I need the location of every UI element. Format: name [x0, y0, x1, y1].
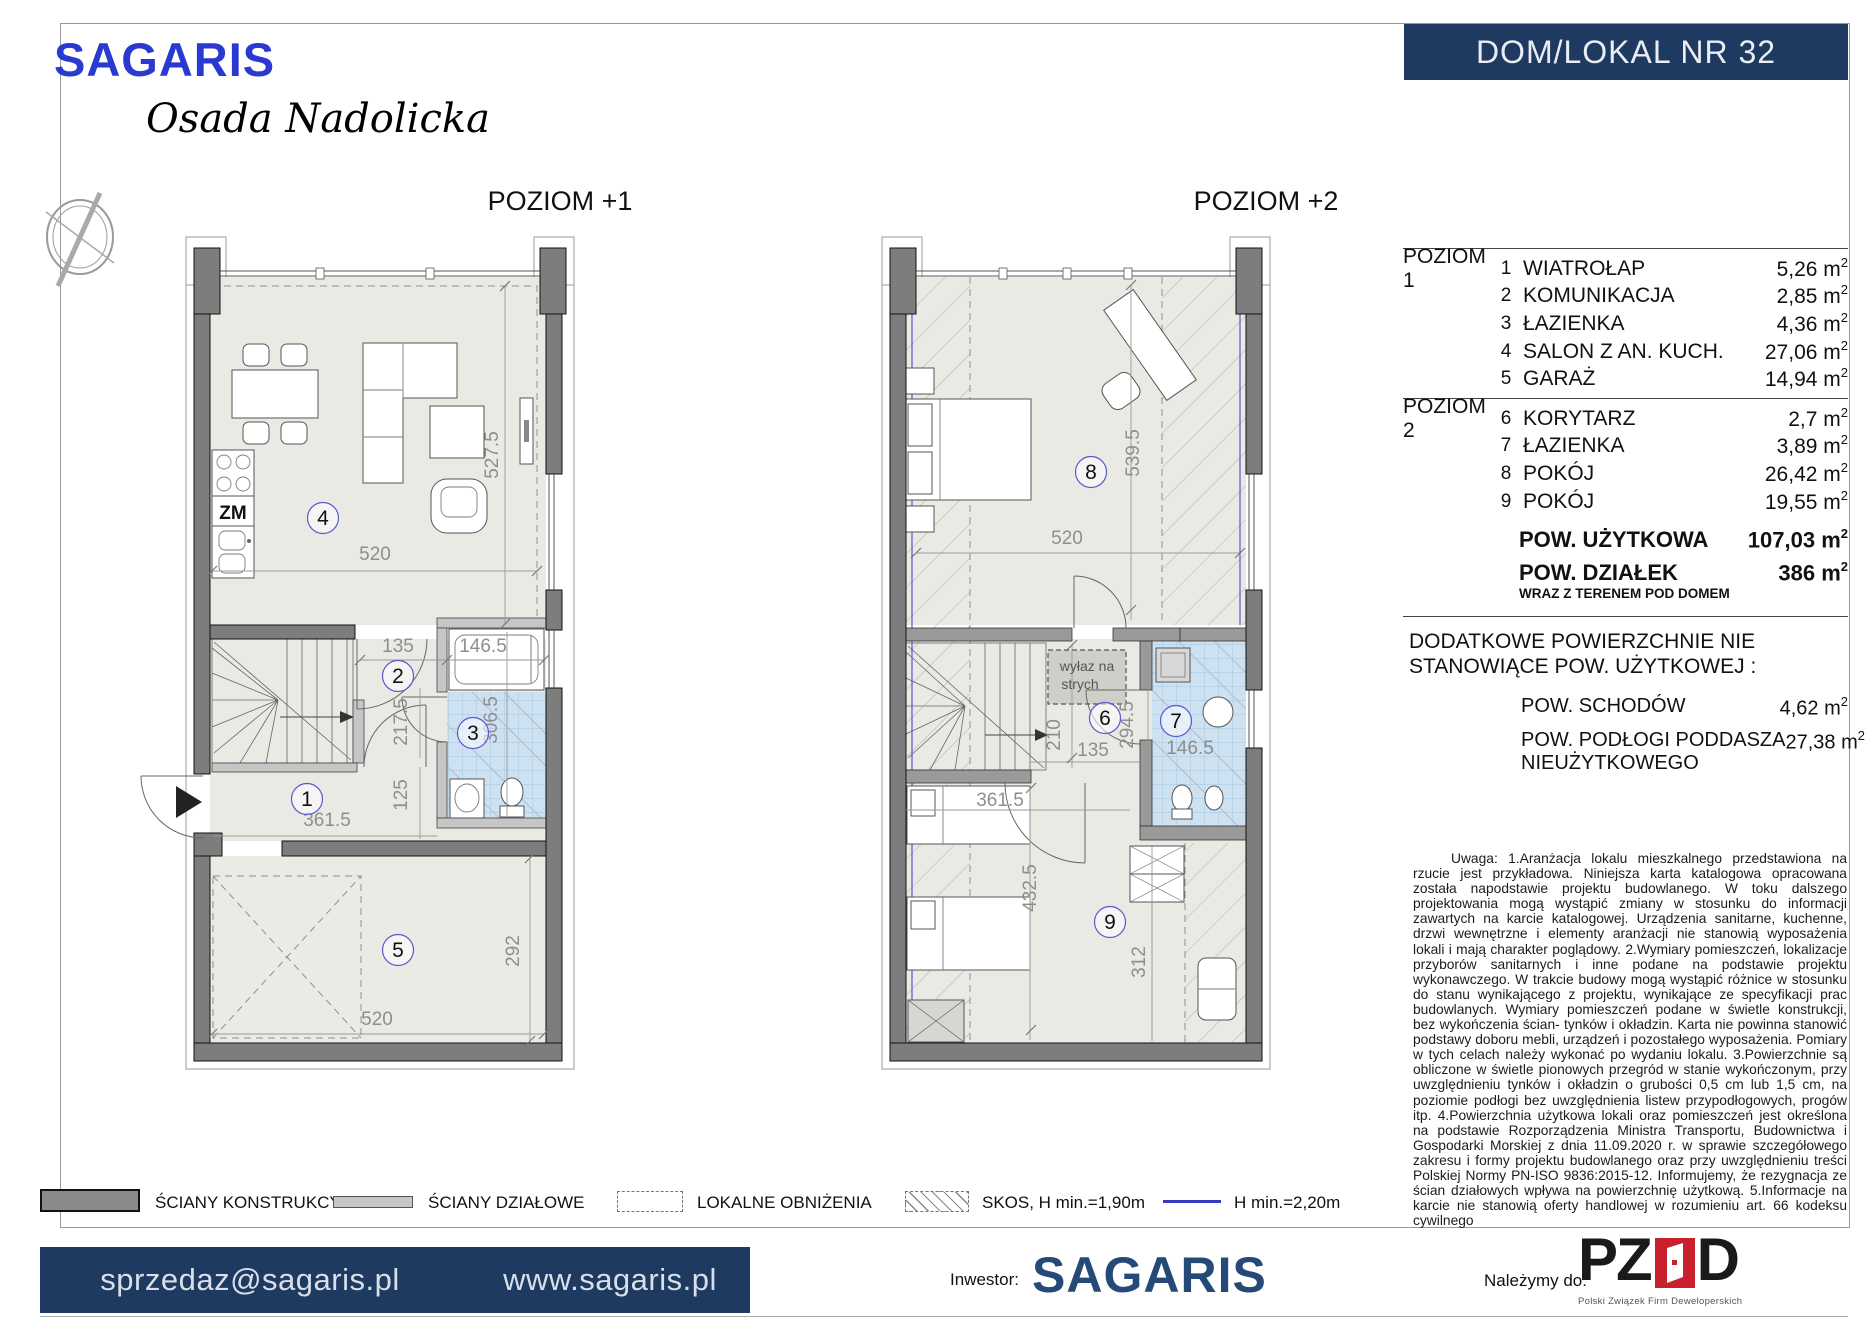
svg-text:2: 2 — [392, 665, 404, 688]
area-table: POZIOM 11WIATROŁAP5,26 m22KOMUNIKACJA2,8… — [1403, 248, 1848, 775]
pzfd-logo: PZ D Polski Związek Firm Deweloperskich — [1578, 1234, 1768, 1307]
total-usable-value: 107,03 m2 — [1748, 527, 1848, 553]
svg-text:135: 135 — [1077, 740, 1109, 761]
svg-text:292: 292 — [503, 935, 524, 967]
svg-text:210: 210 — [1044, 719, 1065, 751]
area-row: 3ŁAZIENKA4,36 m2 — [1403, 310, 1848, 338]
footer-bar: sprzedaz@sagaris.pl www.sagaris.pl — [40, 1247, 750, 1313]
legend-partition-wall-label: ŚCIANY DZIAŁOWE — [428, 1193, 585, 1213]
investor-logo: SAGARIS — [1032, 1246, 1267, 1304]
svg-text:1: 1 — [301, 788, 313, 811]
area-row: 9POKÓJ19,55 m2 — [1403, 488, 1848, 516]
table-rule — [1403, 616, 1848, 617]
area-row: 4SALON Z AN. KUCH.27,06 m2 — [1403, 338, 1848, 366]
pzfd-door-icon — [1655, 1238, 1695, 1288]
svg-text:527.5: 527.5 — [482, 431, 503, 479]
legend-local-lowering-swatch — [617, 1191, 683, 1212]
svg-text:strych: strych — [1061, 676, 1098, 692]
legend-slope-swatch — [905, 1191, 969, 1212]
sales-email: sprzedaz@sagaris.pl — [100, 1262, 400, 1298]
plan2: 520539.5210135294.5146.5361.5432.5312wył… — [882, 237, 1270, 1069]
svg-text:361.5: 361.5 — [976, 790, 1024, 811]
total-usable-label: POW. UŻYTKOWA — [1403, 527, 1708, 553]
svg-text:146.5: 146.5 — [1166, 738, 1214, 759]
legend-structural-wall-swatch — [40, 1189, 140, 1212]
website-link: www.sagaris.pl — [460, 1262, 760, 1298]
svg-text:312: 312 — [1129, 946, 1150, 978]
area-row: POZIOM 11WIATROŁAP5,26 m2 — [1403, 255, 1848, 283]
total-plot-value: 386 m2 — [1778, 560, 1848, 586]
svg-text:294.5: 294.5 — [1117, 701, 1138, 749]
total-plot-label: POW. DZIAŁEK WRAZ Z TERENEM POD DOMEM — [1403, 560, 1730, 601]
svg-text:6: 6 — [1099, 707, 1111, 730]
legend-local-lowering-label: LOKALNE OBNIŻENIA — [697, 1193, 872, 1213]
svg-text:520: 520 — [359, 544, 391, 565]
area-row: 5GARAŻ14,94 m2 — [1403, 365, 1848, 393]
compass-icon — [46, 193, 114, 286]
total-plot-row: POW. DZIAŁEK WRAZ Z TERENEM POD DOMEM 38… — [1403, 560, 1848, 616]
svg-text:8: 8 — [1085, 461, 1097, 484]
stairs-area-row: POW. SCHODÓW 4,62 m2 — [1403, 695, 1848, 721]
disclaimer-text: Uwaga: 1.Aranżacja lokalu mieszkalnego p… — [1413, 851, 1847, 1228]
legend-slope-label: SKOS, H min.=1,90m — [982, 1193, 1145, 1213]
investor-label: Inwestor: — [950, 1270, 1019, 1290]
additional-areas-heading: DODATKOWE POWIERZCHNIE NIE STANOWIĄCE PO… — [1403, 629, 1848, 679]
plan1: 520527.5135146.5217.5306.5125361.5292520… — [141, 237, 574, 1069]
attic-area-row: POW. PODŁOGI PODDASZA NIEUŻYTKOWEGO 27,3… — [1403, 729, 1848, 775]
area-row: POZIOM 26KORYTARZ2,7 m2 — [1403, 405, 1848, 433]
svg-text:520: 520 — [1051, 528, 1083, 549]
svg-text:432.5: 432.5 — [1020, 864, 1041, 912]
svg-text:4: 4 — [317, 507, 329, 530]
total-usable-row: POW. UŻYTKOWA 107,03 m2 — [1403, 520, 1848, 560]
legend-hmin-line-swatch — [1163, 1200, 1221, 1203]
svg-text:ZM: ZM — [219, 503, 246, 524]
svg-text:5: 5 — [392, 939, 404, 962]
area-row: 8POKÓJ26,42 m2 — [1403, 460, 1848, 488]
svg-text:9: 9 — [1104, 911, 1116, 934]
total-plot-subnote: WRAZ Z TERENEM POD DOMEM — [1519, 586, 1730, 601]
svg-text:125: 125 — [391, 779, 412, 811]
svg-text:3: 3 — [467, 722, 479, 745]
membership-label: Należymy do: — [1484, 1271, 1587, 1291]
svg-text:135: 135 — [382, 636, 414, 657]
attic-area-value: 27,38 m2 — [1786, 729, 1866, 755]
svg-text:520: 520 — [361, 1009, 393, 1030]
svg-text:wyłaz na: wyłaz na — [1059, 658, 1115, 674]
svg-text:146.5: 146.5 — [459, 636, 507, 657]
stairs-area-value: 4,62 m2 — [1780, 695, 1848, 721]
legend-partition-wall-swatch — [333, 1196, 413, 1208]
legend-hmin-label: H min.=2,20m — [1234, 1193, 1340, 1213]
footer-divider — [40, 1316, 1848, 1317]
svg-text:539.5: 539.5 — [1123, 429, 1144, 477]
svg-text:7: 7 — [1170, 710, 1182, 733]
pzfd-caption: Polski Związek Firm Deweloperskich — [1578, 1296, 1768, 1307]
svg-text:217.5: 217.5 — [391, 698, 412, 746]
